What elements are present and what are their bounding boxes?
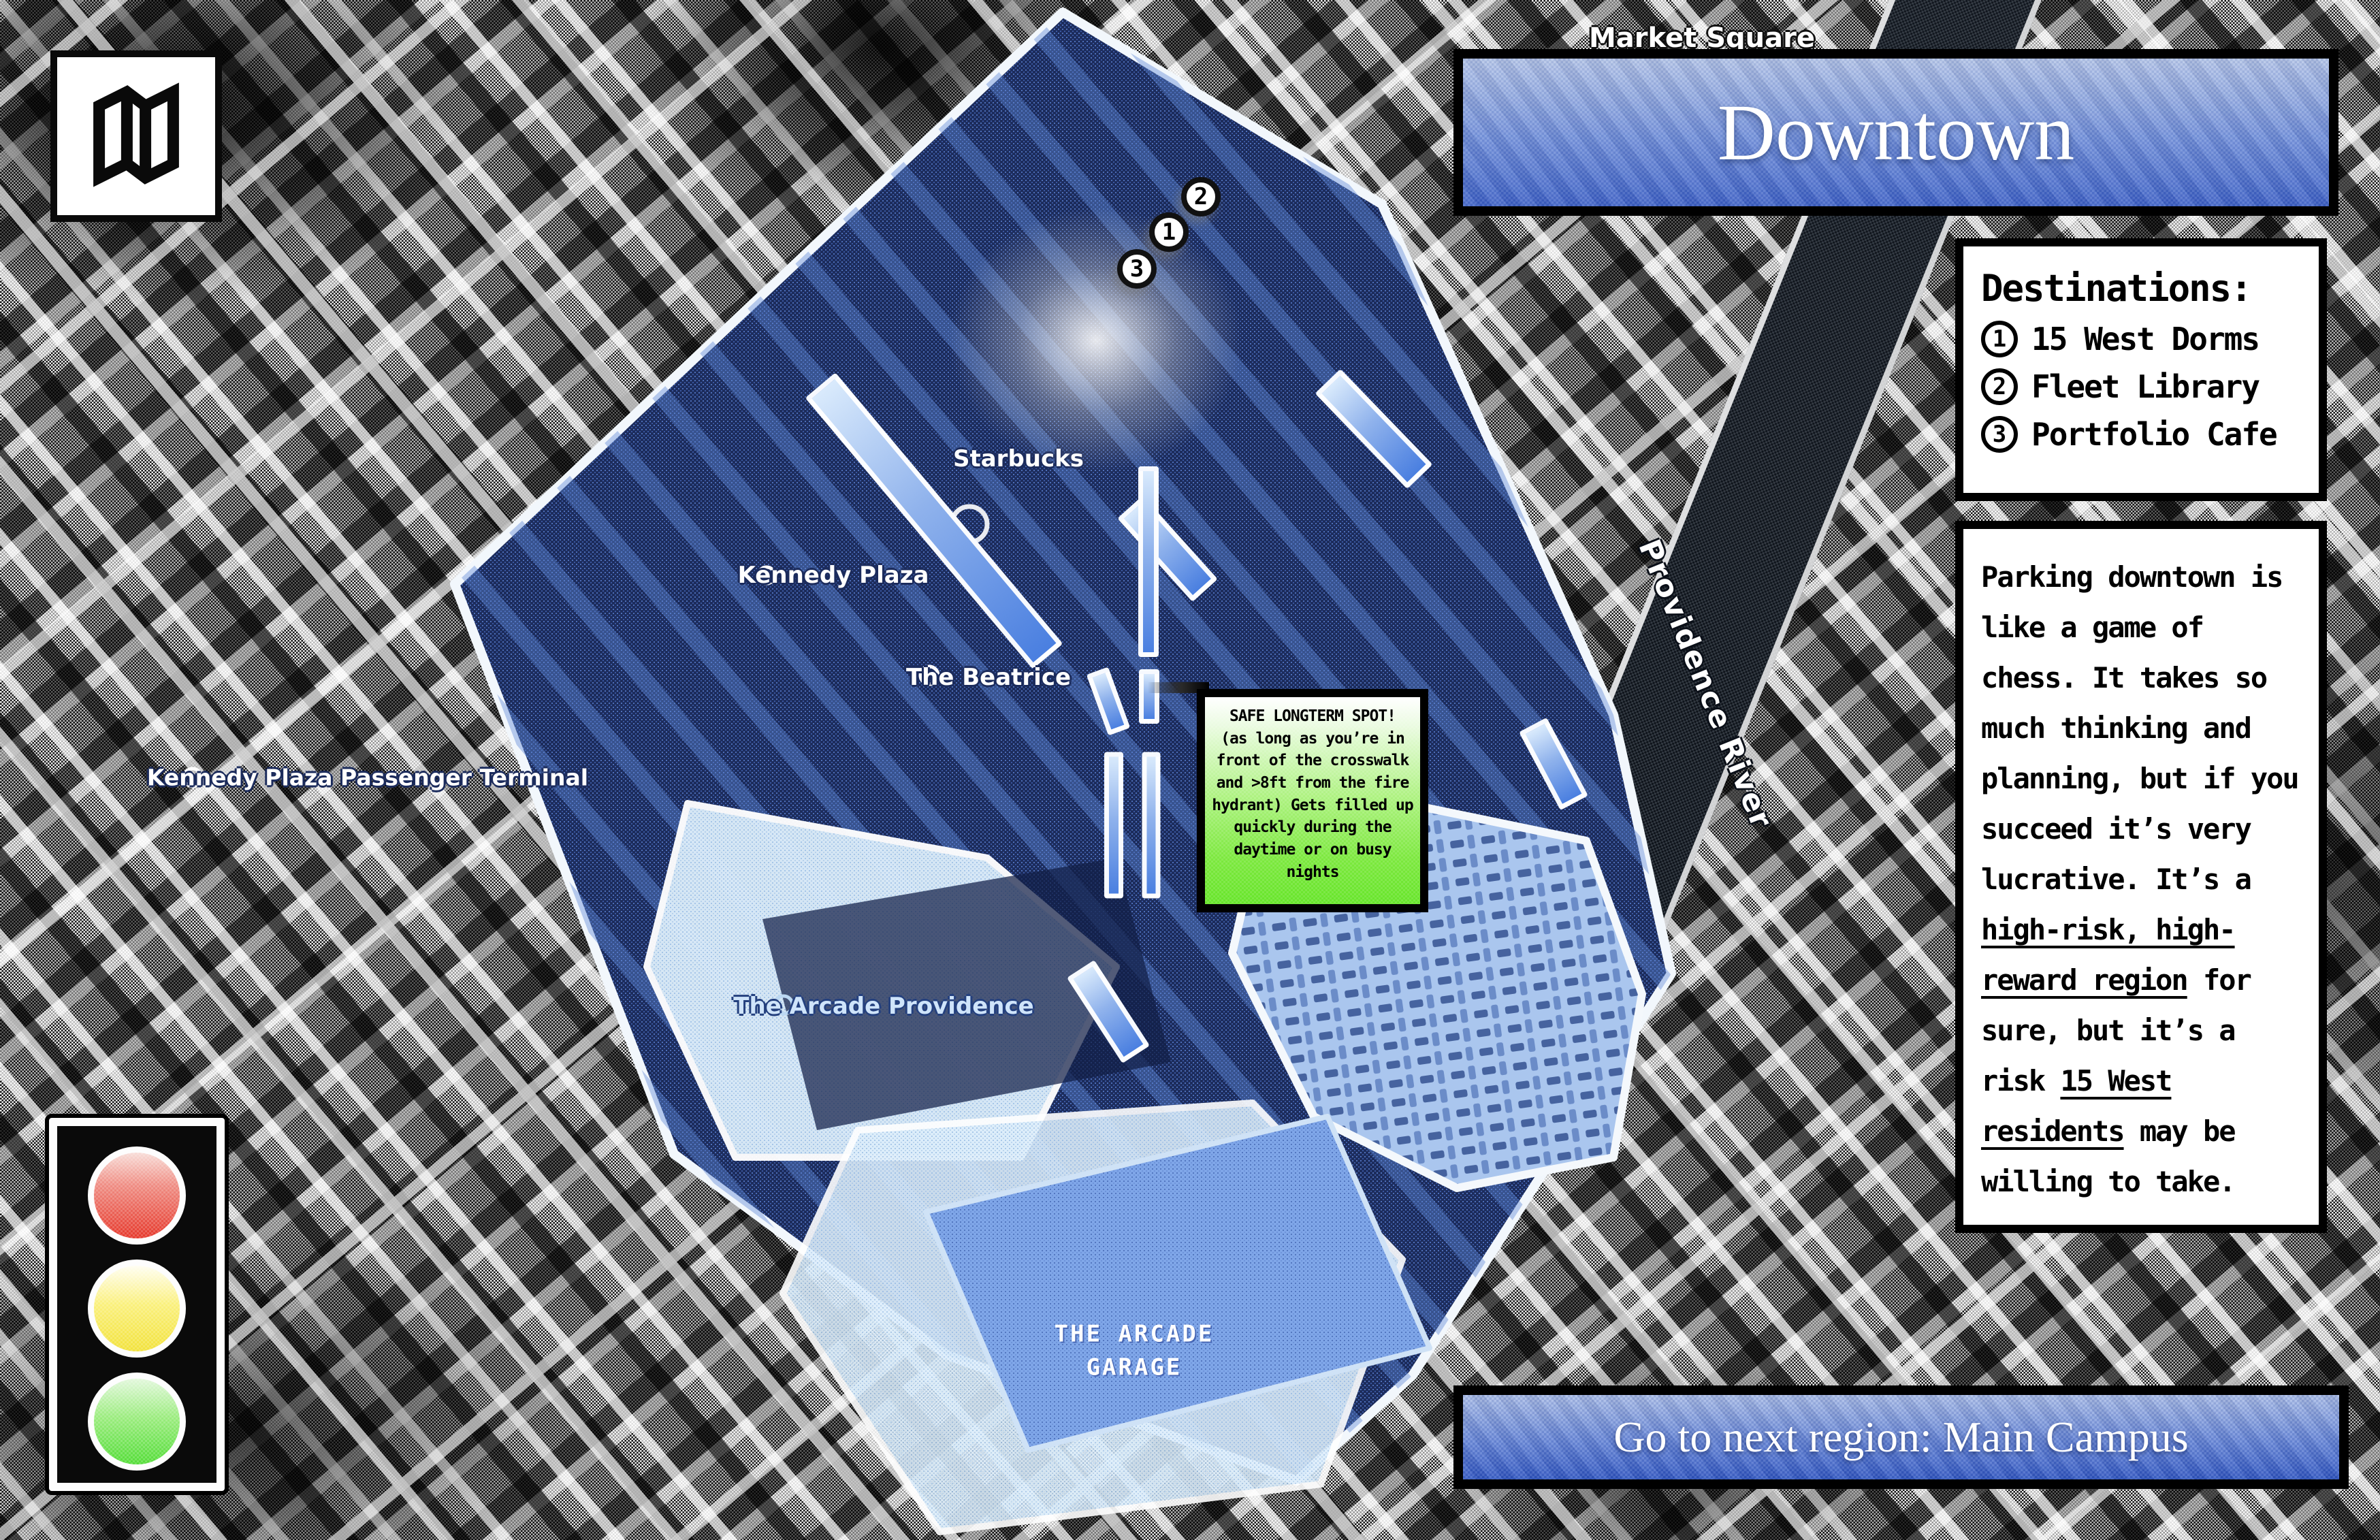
label-the-beatrice: The Beatrice <box>906 664 1071 691</box>
callout-body: (as long as you’re in front of the cross… <box>1210 728 1415 884</box>
map-icon-button[interactable] <box>50 50 222 222</box>
parking-info-panel: Parking downtown is like a game of chess… <box>1955 521 2327 1233</box>
map-marker-1: 1 <box>1149 212 1189 252</box>
safe-spot-callout: SAFE LONGTERM SPOT! (as long as you’re i… <box>1197 689 1428 912</box>
traffic-light-red <box>88 1146 186 1245</box>
folded-map-icon <box>78 77 194 195</box>
map-marker-2: 2 <box>1181 177 1221 216</box>
parking-strip <box>1139 669 1159 724</box>
downtown-map-screen: Market Square Starbucks Kennedy Plaza Th… <box>0 0 2380 1540</box>
label-kennedy-plaza: Kennedy Plaza <box>738 562 929 589</box>
map-marker-3: 3 <box>1117 249 1157 289</box>
marker-number: 1 <box>1162 219 1176 246</box>
destination-number-badge: 2 <box>1981 368 2018 405</box>
label-the-arcade-garage: THE ARCADE GARAGE <box>1018 1318 1250 1385</box>
next-region-button[interactable]: Go to next region: Main Campus <box>1453 1385 2349 1489</box>
marker-shadow-glow <box>950 208 1242 473</box>
marker-number: 3 <box>1130 255 1144 283</box>
destination-label: Portfolio Cafe <box>2031 416 2277 453</box>
parking-strip <box>1142 752 1161 899</box>
marker-number: 2 <box>1194 183 1208 210</box>
next-region-button-label: Go to next region: Main Campus <box>1613 1412 2188 1462</box>
traffic-light-yellow <box>88 1260 186 1358</box>
destination-item-2: 2 Fleet Library <box>1981 368 2301 405</box>
destination-item-1: 1 15 West Dorms <box>1981 321 2301 357</box>
parking-strip <box>1104 752 1123 899</box>
destination-label: Fleet Library <box>2031 368 2259 405</box>
label-the-arcade-providence: The Arcade Providence <box>733 993 1033 1020</box>
destination-item-3: 3 Portfolio Cafe <box>1981 416 2301 453</box>
destinations-panel: Destinations: 1 15 West Dorms 2 Fleet Li… <box>1955 238 2327 501</box>
destinations-heading: Destinations: <box>1981 267 2301 310</box>
parking-strip <box>1138 466 1159 657</box>
page-title: Downtown <box>1718 86 2074 179</box>
label-kennedy-plaza-passenger-terminal: Kennedy Plaza Passenger Terminal <box>147 765 588 791</box>
traffic-light-green <box>88 1373 186 1471</box>
traffic-light-indicator <box>49 1118 225 1491</box>
callout-title: SAFE LONGTERM SPOT! <box>1210 705 1415 728</box>
destination-number-badge: 1 <box>1981 321 2018 357</box>
parking-info-text: Parking downtown is like a game of chess… <box>1981 552 2301 1207</box>
destination-number-badge: 3 <box>1981 416 2018 453</box>
destination-label: 15 West Dorms <box>2031 321 2259 357</box>
region-title-banner: Downtown <box>1453 49 2338 216</box>
